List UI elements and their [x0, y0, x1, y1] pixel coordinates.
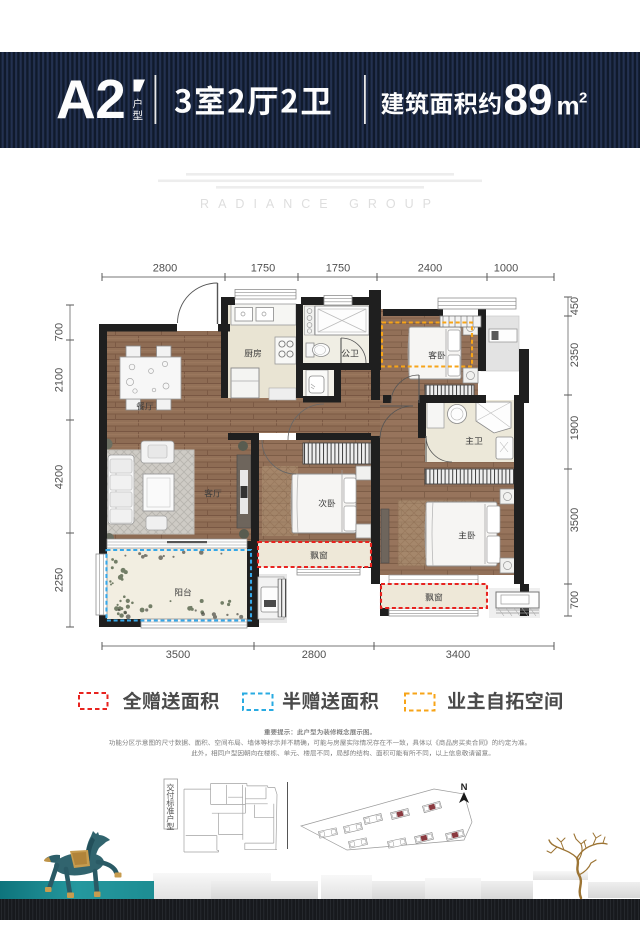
svg-text:4200: 4200 [54, 465, 66, 489]
svg-text:3500: 3500 [166, 649, 190, 661]
svg-text:2800: 2800 [302, 649, 326, 661]
svg-text:700: 700 [54, 323, 66, 341]
svg-text:RADIANCE GROUP: RADIANCE GROUP [200, 197, 440, 211]
svg-text:A2: A2 [56, 68, 125, 130]
svg-text:3400: 3400 [446, 649, 470, 661]
svg-text:m: m [557, 91, 580, 121]
svg-text:1750: 1750 [251, 263, 275, 275]
svg-text:700: 700 [569, 591, 581, 609]
svg-text:N: N [461, 782, 468, 793]
svg-text:2: 2 [579, 90, 587, 107]
svg-text:2400: 2400 [418, 263, 442, 275]
svg-text:89: 89 [504, 76, 553, 125]
svg-text:2250: 2250 [54, 568, 66, 592]
svg-text:2100: 2100 [54, 368, 66, 392]
svg-text:2350: 2350 [569, 343, 581, 367]
svg-text:1000: 1000 [494, 263, 518, 275]
svg-text:450: 450 [569, 297, 581, 315]
svg-text:2800: 2800 [153, 263, 177, 275]
svg-text:1900: 1900 [569, 416, 581, 440]
svg-text:1750: 1750 [326, 263, 350, 275]
svg-text:3500: 3500 [569, 508, 581, 532]
